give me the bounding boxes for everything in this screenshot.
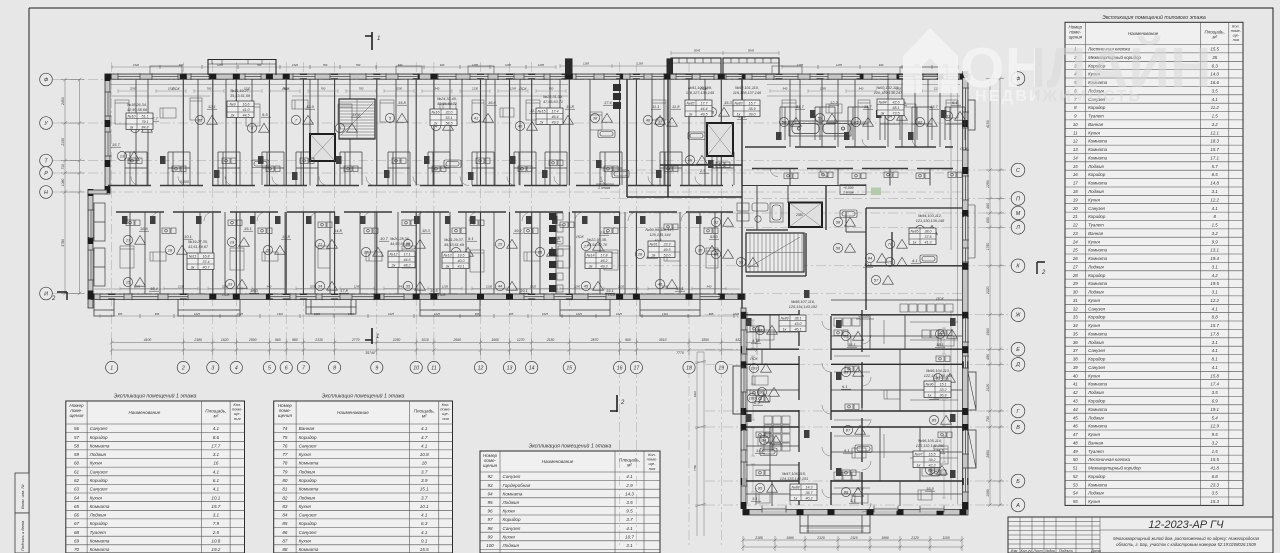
svg-text:1310: 1310 — [277, 312, 283, 316]
svg-text:15.8: 15.8 — [566, 104, 575, 109]
svg-text:Комната: Комната — [1088, 181, 1108, 186]
svg-text:Лоджия: Лоджия — [1087, 164, 1104, 169]
svg-text:16.1: 16.1 — [848, 342, 856, 347]
svg-text:4.1: 4.1 — [1212, 206, 1219, 211]
svg-text:9.1: 9.1 — [468, 236, 474, 241]
svg-text:88: 88 — [282, 547, 288, 552]
svg-text:3.1: 3.1 — [1212, 340, 1219, 345]
svg-text:41: 41 — [1073, 382, 1078, 387]
svg-text:4.1: 4.1 — [213, 426, 220, 431]
svg-text:77: 77 — [282, 452, 288, 457]
svg-text:39: 39 — [1073, 365, 1078, 370]
svg-text:53.0: 53.0 — [664, 253, 671, 257]
svg-text:58.5: 58.5 — [446, 121, 453, 125]
svg-text:4100: 4100 — [144, 338, 152, 342]
svg-text:82: 82 — [282, 495, 288, 500]
svg-text:24: 24 — [1072, 239, 1078, 244]
svg-text:4.7: 4.7 — [421, 435, 428, 440]
svg-text:8.1: 8.1 — [1212, 357, 1219, 362]
svg-text:Подпись и дата: Подпись и дата — [20, 520, 25, 551]
svg-text:Лоджия: Лоджия — [298, 469, 316, 474]
svg-text:1285: 1285 — [442, 284, 449, 288]
svg-text:1620: 1620 — [221, 338, 229, 342]
svg-text:97: 97 — [487, 517, 493, 522]
svg-text:41.3: 41.3 — [925, 240, 932, 244]
svg-text:40: 40 — [1073, 373, 1078, 378]
svg-text:Кухня: Кухня — [1088, 373, 1100, 378]
svg-text:2в: 2в — [588, 264, 593, 268]
svg-text:14.3: 14.3 — [756, 448, 765, 453]
svg-text:3к: 3к — [191, 265, 195, 269]
svg-text:Лоджия: Лоджия — [1087, 390, 1104, 395]
svg-text:№24,32,40,: №24,32,40, — [437, 97, 457, 101]
svg-text:69: 69 — [74, 538, 80, 543]
svg-text:2770: 2770 — [351, 338, 360, 342]
svg-text:ния: ния — [649, 466, 656, 471]
svg-text:83: 83 — [282, 504, 288, 509]
svg-text:44,52,60,68: 44,52,60,68 — [390, 242, 411, 246]
svg-text:55: 55 — [1073, 499, 1078, 504]
svg-text:Лоджия: Лоджия — [1087, 415, 1104, 420]
svg-text:Комната: Комната — [1088, 382, 1108, 387]
svg-text:Коридор: Коридор — [299, 435, 317, 440]
svg-text:59: 59 — [818, 116, 823, 121]
svg-text:17.7: 17.7 — [211, 444, 220, 449]
svg-text:Взам. инв. №: Взам. инв. № — [20, 484, 25, 509]
svg-text:695: 695 — [709, 312, 714, 316]
svg-text:Лоджия: Лоджия — [1087, 290, 1104, 295]
svg-text:75: 75 — [282, 435, 288, 440]
svg-text:№95,104,113,: №95,104,113, — [926, 369, 950, 373]
svg-text:27: 27 — [1072, 264, 1078, 269]
svg-text:650: 650 — [986, 217, 990, 223]
svg-text:1285: 1285 — [510, 87, 517, 91]
svg-text:45: 45 — [1073, 415, 1078, 420]
svg-text:4.1: 4.1 — [912, 258, 918, 263]
svg-text:53: 53 — [1073, 482, 1078, 487]
svg-text:Л: Л — [1015, 225, 1020, 231]
svg-text:7780: 7780 — [693, 464, 697, 471]
svg-text:1520: 1520 — [292, 63, 298, 67]
svg-text:Коридор: Коридор — [1088, 105, 1106, 110]
svg-text:45,53,61,69: 45,53,61,69 — [444, 243, 465, 247]
svg-text:Санузел: Санузел — [1088, 306, 1106, 311]
svg-text:15.7: 15.7 — [1210, 147, 1219, 152]
svg-text:№16: №16 — [432, 110, 440, 114]
svg-text:№13: №13 — [444, 253, 452, 257]
svg-text:№96,105,114,: №96,105,114, — [918, 439, 942, 443]
svg-text:№14: №14 — [587, 253, 595, 257]
svg-text:38: 38 — [1073, 357, 1078, 362]
svg-text:3.7: 3.7 — [421, 495, 428, 500]
svg-text:Кухня: Кухня — [299, 504, 312, 509]
svg-text:13.1: 13.1 — [676, 286, 684, 291]
svg-text:Наименование: Наименование — [542, 459, 574, 464]
svg-text:760: 760 — [359, 87, 364, 91]
svg-text:2110: 2110 — [849, 536, 857, 540]
svg-text:10.8: 10.8 — [211, 538, 220, 543]
svg-text:18.0: 18.0 — [250, 288, 259, 293]
svg-text:10.8: 10.8 — [552, 236, 561, 241]
svg-text:62: 62 — [74, 478, 80, 483]
svg-text:2660: 2660 — [452, 338, 461, 342]
svg-text:15.7: 15.7 — [1210, 323, 1219, 328]
svg-text:32: 32 — [1073, 306, 1078, 311]
svg-text:Комната: Комната — [90, 504, 110, 509]
svg-text:№11: №11 — [189, 254, 197, 258]
svg-text:Санузел: Санузел — [503, 526, 521, 531]
svg-text:79.1: 79.1 — [142, 120, 149, 124]
svg-text:Лоджия: Лоджия — [89, 513, 107, 518]
svg-text:14.8: 14.8 — [1210, 181, 1219, 186]
svg-text:16.6: 16.6 — [488, 100, 497, 105]
svg-text:26: 26 — [1072, 256, 1078, 261]
svg-text:10: 10 — [413, 365, 419, 371]
svg-text:12: 12 — [478, 365, 484, 371]
svg-text:ния: ния — [1233, 38, 1239, 42]
svg-text:37.6: 37.6 — [925, 235, 932, 239]
svg-text:18.3: 18.3 — [422, 228, 431, 233]
svg-text:23: 23 — [1072, 231, 1078, 236]
svg-text:15.5: 15.5 — [929, 452, 936, 456]
svg-text:13.1: 13.1 — [1210, 248, 1219, 253]
svg-text:Туалет: Туалет — [1088, 114, 1104, 119]
svg-text:№88: №88 — [792, 485, 800, 489]
svg-text:35,43,51,59: 35,43,51,59 — [230, 94, 251, 98]
svg-text:П: П — [1016, 196, 1020, 202]
svg-text:2130: 2130 — [617, 284, 625, 288]
svg-text:7.9: 7.9 — [213, 521, 220, 526]
svg-text:9.5: 9.5 — [626, 509, 633, 514]
svg-text:1025: 1025 — [576, 312, 582, 316]
svg-text:2.5: 2.5 — [699, 168, 706, 173]
svg-text:46,54,62,70: 46,54,62,70 — [587, 243, 608, 247]
svg-text:45: 45 — [584, 284, 589, 289]
svg-text:95: 95 — [487, 500, 493, 505]
svg-text:67: 67 — [74, 521, 80, 526]
svg-text:Экспликация помещений типового: Экспликация помещений типового этажа — [1102, 14, 1206, 21]
svg-text:62: 62 — [918, 120, 923, 125]
svg-text:Коридор: Коридор — [1088, 214, 1106, 219]
svg-text:19.1: 19.1 — [1210, 407, 1219, 412]
svg-text:1520: 1520 — [133, 63, 139, 67]
svg-text:Ванная: Ванная — [1088, 122, 1104, 127]
svg-text:43: 43 — [1073, 399, 1078, 404]
svg-text:39.0: 39.0 — [749, 112, 756, 116]
svg-text:Комната: Комната — [90, 444, 110, 449]
svg-text:88: 88 — [928, 468, 933, 473]
svg-text:Лоджия: Лоджия — [502, 500, 520, 505]
svg-text:57: 57 — [874, 278, 879, 283]
svg-text:ЛСК: ЛСК — [959, 147, 968, 151]
svg-text:3: 3 — [211, 365, 214, 371]
svg-text:1к: 1к — [737, 112, 741, 116]
svg-text:Лестничная клетка: Лестничная клетка — [1087, 457, 1130, 462]
svg-text:79: 79 — [282, 469, 288, 474]
svg-text:118,127,136,145: 118,127,136,145 — [686, 91, 715, 95]
svg-text:Кухня: Кухня — [90, 461, 103, 466]
svg-text:Лоджия: Лоджия — [298, 495, 316, 500]
svg-text:1.1: 1.1 — [850, 498, 856, 503]
svg-text:1270: 1270 — [517, 338, 525, 342]
svg-text:3.7: 3.7 — [626, 517, 633, 522]
svg-text:21: 21 — [317, 242, 322, 247]
svg-text:ЛСК: ЛСК — [749, 357, 758, 361]
svg-text:65: 65 — [74, 504, 80, 509]
svg-text:3.7: 3.7 — [421, 469, 428, 474]
svg-text:33.2: 33.2 — [940, 388, 947, 392]
svg-text:2250: 2250 — [392, 338, 401, 342]
svg-text:18: 18 — [686, 365, 692, 371]
svg-text:34: 34 — [318, 284, 323, 289]
svg-text:Кухня: Кухня — [1088, 499, 1100, 504]
svg-text:93: 93 — [758, 328, 763, 333]
svg-text:44.5: 44.5 — [243, 113, 250, 117]
svg-text:42.6: 42.6 — [893, 100, 900, 104]
svg-text:Коридор: Коридор — [1088, 315, 1106, 320]
svg-text:17.6: 17.6 — [604, 100, 613, 105]
svg-text:Наименование: Наименование — [337, 410, 369, 415]
svg-text:85: 85 — [932, 418, 937, 423]
svg-text:4.1: 4.1 — [626, 526, 633, 531]
svg-text:щения: щения — [69, 413, 84, 418]
svg-text:Комната: Комната — [1088, 407, 1108, 412]
svg-text:1025: 1025 — [616, 312, 622, 316]
svg-text:32.0: 32.0 — [446, 110, 453, 114]
svg-text:85: 85 — [282, 521, 288, 526]
svg-text:3.2: 3.2 — [1212, 122, 1219, 127]
svg-text:3.5: 3.5 — [1212, 491, 1219, 496]
svg-text:980: 980 — [292, 338, 298, 342]
svg-text:12: 12 — [1073, 139, 1078, 144]
svg-text:41.8: 41.8 — [1210, 466, 1219, 471]
svg-text:15.7: 15.7 — [211, 504, 220, 509]
svg-text:Комната: Комната — [1088, 248, 1108, 253]
svg-text:ЛСК: ЛСК — [171, 87, 180, 91]
svg-text:ще-: ще- — [1233, 34, 1240, 38]
svg-text:15: 15 — [126, 280, 131, 285]
svg-text:6.5: 6.5 — [1212, 172, 1219, 177]
svg-text:8: 8 — [333, 365, 336, 371]
svg-text:2в: 2в — [688, 112, 693, 116]
svg-text:66: 66 — [74, 513, 80, 518]
svg-text:2150: 2150 — [61, 138, 65, 147]
svg-text:940: 940 — [267, 284, 272, 288]
svg-text:м²: м² — [627, 463, 632, 468]
svg-text:96: 96 — [487, 509, 493, 514]
svg-text:Санузел: Санузел — [90, 469, 108, 474]
svg-text:16: 16 — [617, 365, 623, 371]
svg-text:11.8: 11.8 — [672, 104, 680, 109]
svg-text:38.0: 38.0 — [925, 229, 932, 233]
svg-text:83: 83 — [844, 370, 849, 375]
svg-text:19.2: 19.2 — [514, 228, 523, 233]
svg-text:960: 960 — [625, 338, 631, 342]
svg-text:760: 760 — [323, 63, 328, 67]
svg-text:15.1: 15.1 — [940, 382, 947, 386]
svg-text:Комната: Комната — [1088, 256, 1108, 261]
svg-text:44.4: 44.4 — [701, 107, 708, 111]
svg-text:1310: 1310 — [662, 312, 668, 316]
svg-text:78: 78 — [282, 461, 288, 466]
svg-text:Ванная: Ванная — [1088, 231, 1104, 236]
svg-text:16.6: 16.6 — [140, 226, 149, 231]
svg-text:6.1: 6.1 — [213, 478, 220, 483]
svg-text:4150: 4150 — [986, 120, 990, 128]
svg-text:10.1: 10.1 — [184, 234, 192, 239]
svg-text:Коридор: Коридор — [1088, 172, 1106, 177]
svg-text:м²: м² — [1212, 34, 1217, 39]
svg-text:49: 49 — [1073, 449, 1078, 454]
svg-text:ЛСК: ЛСК — [935, 297, 944, 301]
svg-text:17: 17 — [126, 238, 131, 243]
svg-text:64: 64 — [74, 495, 80, 500]
svg-text:М: М — [1016, 211, 1021, 217]
svg-text:28: 28 — [637, 252, 643, 257]
svg-text:Комната: Комната — [1088, 482, 1108, 487]
svg-text:46.2: 46.2 — [601, 259, 608, 263]
svg-text:№9: №9 — [230, 102, 236, 106]
svg-text:41.0: 41.0 — [243, 108, 250, 112]
svg-text:Кол.: Кол. — [1232, 24, 1239, 28]
svg-text:У: У — [43, 121, 48, 127]
svg-text:1285: 1285 — [217, 63, 223, 67]
svg-text:940: 940 — [879, 63, 884, 67]
svg-text:23.3: 23.3 — [663, 242, 671, 246]
svg-text:№21,29,37,: №21,29,37, — [444, 238, 464, 242]
svg-text:5.7: 5.7 — [1212, 164, 1219, 169]
svg-text:1660: 1660 — [491, 338, 499, 342]
svg-text:1285: 1285 — [505, 63, 511, 67]
svg-text:№док: №док — [1045, 549, 1055, 553]
svg-text:40.7: 40.7 — [203, 265, 211, 269]
svg-text:4.1: 4.1 — [421, 513, 428, 518]
svg-text:760: 760 — [257, 63, 262, 67]
svg-text:6410: 6410 — [693, 390, 697, 397]
svg-text:2120: 2120 — [816, 536, 825, 540]
svg-text:Экспликация помещений 1 этажа: Экспликация помещений 1 этажа — [529, 443, 612, 450]
svg-text:37.4: 37.4 — [203, 260, 210, 264]
svg-text:11: 11 — [431, 365, 436, 371]
svg-text:Коридор: Коридор — [1088, 399, 1106, 404]
svg-text:33: 33 — [228, 282, 233, 287]
svg-text:3250: 3250 — [396, 87, 403, 91]
svg-text:20: 20 — [265, 248, 271, 253]
svg-text:Лоджия: Лоджия — [1087, 189, 1104, 194]
svg-text:И: И — [44, 291, 48, 297]
svg-text:18.1: 18.1 — [936, 342, 944, 347]
svg-text:2к: 2к — [433, 121, 438, 125]
svg-text:23.3: 23.3 — [599, 230, 609, 235]
svg-text:3.1: 3.1 — [1212, 290, 1219, 295]
svg-text:Б: Б — [1016, 479, 1020, 485]
svg-text:Кухня: Кухня — [503, 509, 516, 514]
svg-text:+0.000: +0.000 — [858, 315, 869, 319]
svg-text:ЛСК: ЛСК — [281, 87, 290, 91]
svg-text:15.8: 15.8 — [398, 100, 407, 105]
svg-text:№97: №97 — [915, 452, 924, 456]
svg-text:8.6: 8.6 — [213, 435, 220, 440]
svg-text:43.1: 43.1 — [458, 264, 465, 268]
svg-text:17: 17 — [1073, 181, 1078, 186]
svg-text:44: 44 — [1073, 407, 1078, 412]
svg-text:6.1: 6.1 — [842, 384, 848, 389]
svg-text:Н: Н — [44, 190, 48, 196]
svg-text:2130: 2130 — [485, 284, 493, 288]
svg-text:70: 70 — [74, 547, 80, 552]
svg-text:10.7: 10.7 — [625, 534, 634, 539]
svg-text:12.2: 12.2 — [1210, 197, 1219, 202]
svg-text:№20,28,36,: №20,28,36, — [390, 237, 410, 241]
svg-text:11.1: 11.1 — [652, 104, 660, 109]
svg-text:56: 56 — [74, 426, 80, 431]
svg-text:87: 87 — [282, 538, 288, 543]
svg-text:6.9: 6.9 — [1212, 399, 1219, 404]
svg-text:4.1: 4.1 — [1212, 306, 1219, 311]
svg-text:58: 58 — [74, 444, 80, 449]
svg-text:№19,27,35,: №19,27,35, — [188, 240, 208, 244]
svg-text:3.1: 3.1 — [1212, 264, 1219, 269]
svg-text:Комната: Комната — [299, 461, 319, 466]
svg-text:89: 89 — [844, 490, 849, 495]
svg-text:940: 940 — [783, 87, 788, 91]
svg-text:№11,19,27,: №11,19,27, — [230, 89, 250, 93]
svg-text:75: 75 — [888, 260, 893, 265]
svg-text:ЛСК: ЛСК — [437, 293, 446, 297]
svg-text:9.5: 9.5 — [262, 112, 268, 117]
svg-text:47,55,63,71: 47,55,63,71 — [543, 100, 563, 104]
svg-text:81: 81 — [282, 487, 288, 492]
svg-text:1080: 1080 — [61, 179, 65, 187]
svg-text:46: 46 — [658, 282, 663, 287]
svg-text:15.5: 15.5 — [926, 486, 935, 491]
svg-text:10.8: 10.8 — [282, 234, 291, 239]
svg-text:15: 15 — [1073, 164, 1078, 169]
svg-text:1к: 1к — [928, 393, 932, 397]
svg-text:38.1: 38.1 — [795, 316, 802, 320]
svg-text:3.2: 3.2 — [1212, 231, 1219, 236]
svg-text:905: 905 — [509, 312, 514, 316]
svg-text:Подпись: Подпись — [1059, 549, 1073, 553]
svg-text:1520: 1520 — [530, 284, 537, 288]
svg-text:Комната: Комната — [1088, 147, 1108, 152]
svg-text:7770: 7770 — [676, 351, 684, 355]
svg-text:61: 61 — [946, 114, 950, 119]
svg-text:660: 660 — [986, 203, 990, 209]
svg-text:1025: 1025 — [733, 312, 739, 316]
svg-text:84: 84 — [282, 513, 288, 518]
svg-text:26: 26 — [537, 250, 543, 255]
svg-text:960: 960 — [275, 338, 281, 342]
svg-text:124,133,142,151: 124,133,142,151 — [780, 477, 809, 481]
svg-text:710: 710 — [61, 164, 65, 170]
svg-text:3.5: 3.5 — [1212, 88, 1219, 93]
svg-text:№83: №83 — [735, 101, 743, 105]
svg-text:4.1: 4.1 — [626, 474, 633, 479]
svg-text:19.4: 19.4 — [150, 286, 159, 291]
svg-text:103: 103 — [751, 366, 758, 371]
svg-text:19: 19 — [718, 365, 724, 371]
svg-text:Р: Р — [44, 171, 48, 177]
svg-text:№18,26,34,: №18,26,34, — [127, 103, 147, 107]
svg-text:1990: 1990 — [881, 536, 889, 540]
svg-text:№94,103,112,: №94,103,112, — [918, 214, 942, 218]
svg-text:12.2: 12.2 — [830, 100, 839, 105]
svg-text:3.5: 3.5 — [1212, 390, 1219, 395]
svg-text:17.1: 17.1 — [404, 252, 411, 256]
svg-text:52: 52 — [1073, 474, 1078, 479]
svg-text:10.8: 10.8 — [420, 452, 429, 457]
